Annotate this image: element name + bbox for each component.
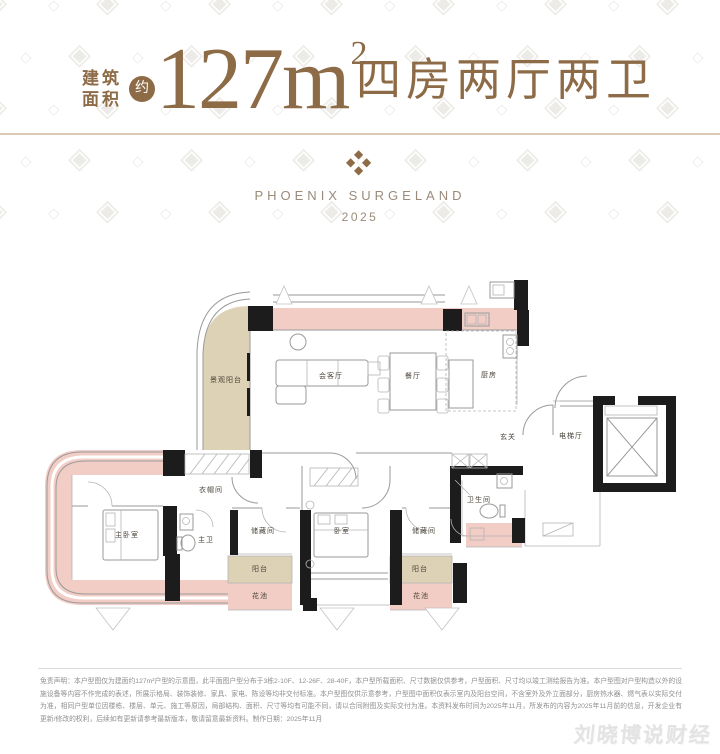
- room-label: 阳台: [252, 564, 268, 574]
- room-label: 储藏间: [412, 526, 436, 536]
- room-label: 主卧室: [115, 530, 139, 540]
- poster-page: ◈◇◈◇◈◇◈◇◈◇◈◇◈◇◇◈◇◈◇◈◇◈◇◈◇◈◇◈◈◇◈◇◈◇◈◇◈◇◈◇…: [0, 0, 720, 754]
- header: 建筑 面积 约 127m2 四房两厅两卫: [0, 42, 720, 134]
- room-label: 玄关: [500, 432, 516, 442]
- room-label: 会客厅: [319, 371, 343, 381]
- ornament-diamond: ◆: [354, 164, 363, 176]
- room-label: 卫生间: [467, 495, 491, 505]
- watermark: 刘晓博说财经: [572, 719, 713, 749]
- floor-plan: 景观阳台 会客厅 餐厅 厨房 玄关 电梯厅 衣帽间 主卧室 主卫 储藏间 阳台 …: [0, 268, 720, 670]
- room-label: 电梯厅: [559, 431, 583, 441]
- room-label: 衣帽间: [199, 485, 223, 495]
- header-divider: [0, 133, 720, 135]
- area-value: 127m2: [156, 36, 367, 124]
- room-label: 景观阳台: [210, 375, 242, 385]
- wardrobe-hatch: [185, 454, 358, 486]
- room-label: 花池: [252, 591, 268, 601]
- brand-year: 2025: [0, 210, 720, 224]
- quatrefoil-ornament-icon: ◆ ◆ ◆ ◆: [345, 148, 375, 178]
- floor-plan-drawing: [0, 268, 720, 670]
- room-label: 主卫: [198, 535, 214, 545]
- room-label: 卧室: [334, 526, 350, 536]
- layout-text: 四房两厅两卫: [356, 58, 656, 103]
- room-label: 厨房: [481, 370, 497, 380]
- area-label-line2: 面积: [82, 89, 122, 110]
- room-label: 花池: [413, 591, 429, 601]
- brand-block: ◆ ◆ ◆ ◆ PHOENIX SURGELAND 2025: [0, 148, 720, 224]
- room-label: 餐厅: [405, 371, 421, 381]
- approx-badge: 约: [129, 76, 155, 102]
- ornament-diamond: ◆: [362, 156, 371, 168]
- area-label-line1: 建筑: [82, 68, 122, 89]
- room-label: 储藏间: [251, 526, 275, 536]
- area-number: 127m: [156, 31, 348, 128]
- room-label: 阳台: [412, 564, 428, 574]
- brand-name: PHOENIX SURGELAND: [0, 188, 720, 203]
- area-label: 建筑 面积: [82, 68, 122, 110]
